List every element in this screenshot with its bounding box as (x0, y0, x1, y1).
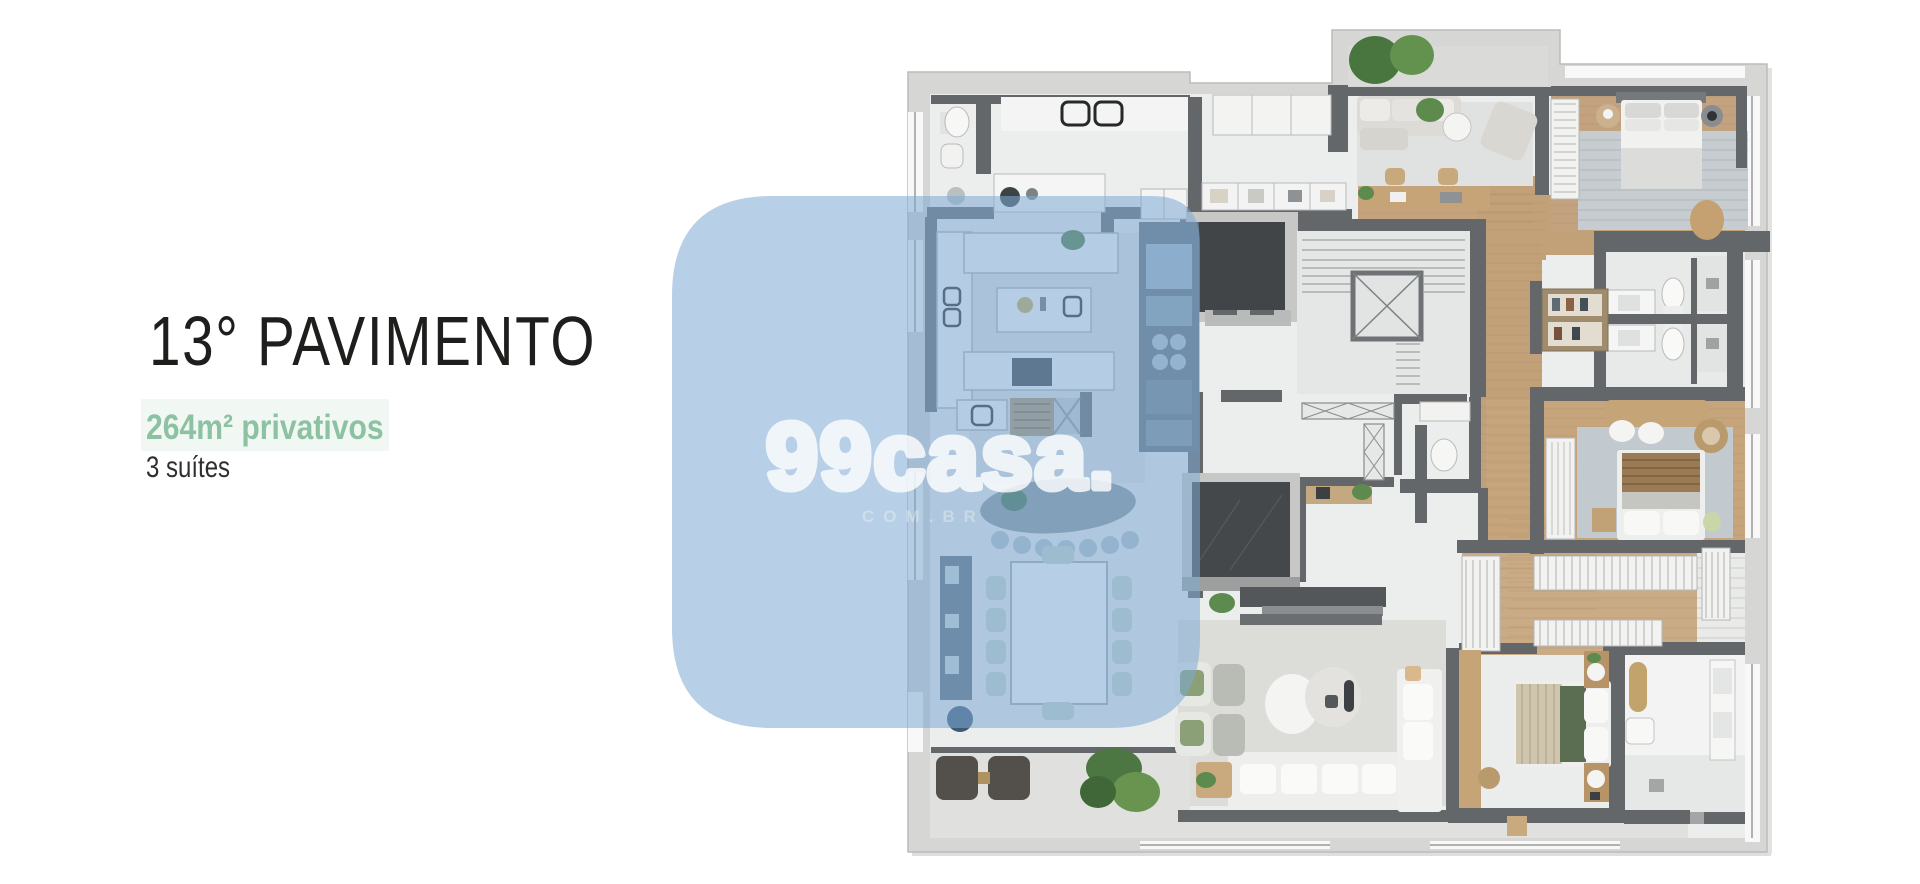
svg-text:99casa.: 99casa. (766, 404, 1116, 508)
svg-text:COM.BR: COM.BR (862, 507, 985, 526)
